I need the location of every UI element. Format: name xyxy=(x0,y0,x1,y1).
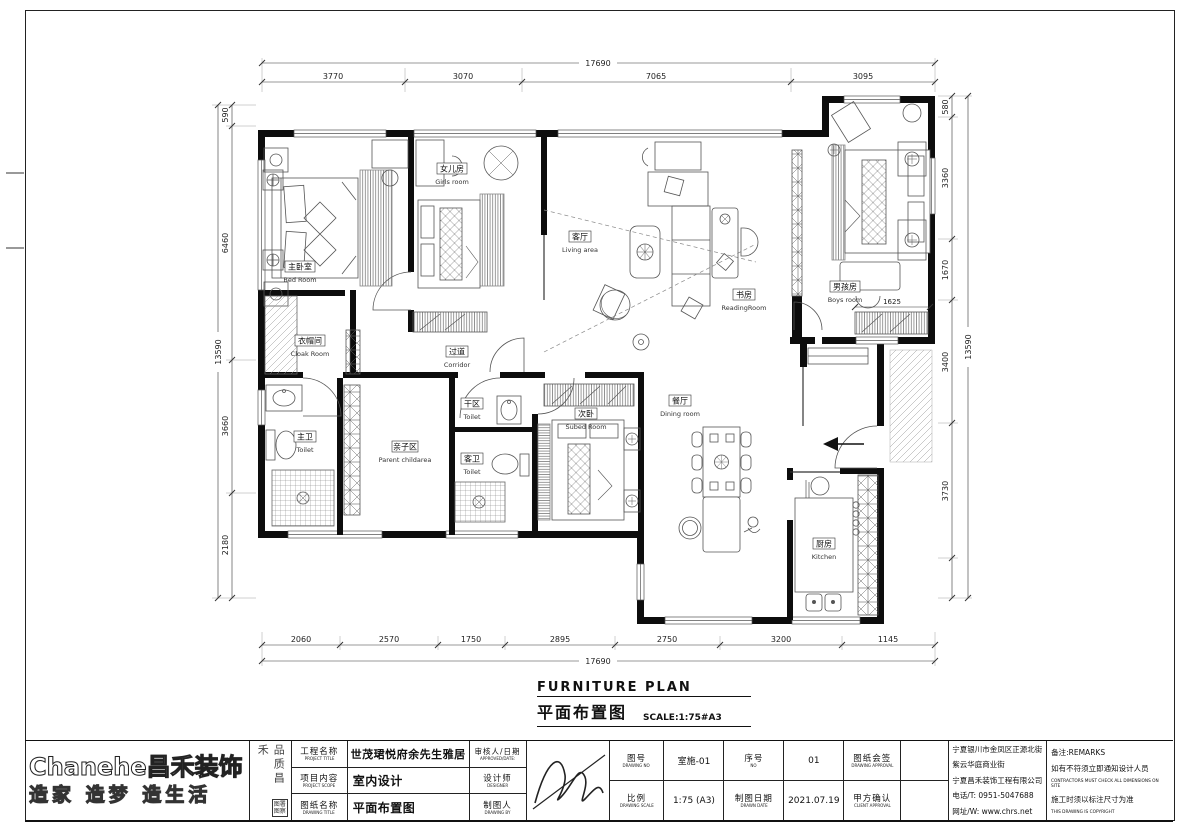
signature-cell xyxy=(527,741,610,820)
vertical-motto: 品质昌禾 xyxy=(254,744,286,799)
project-title-value: 世茂珺悦府余先生雅居 xyxy=(351,746,466,762)
svg-text:客厅: 客厅 xyxy=(572,232,588,242)
svg-text:3360: 3360 xyxy=(941,168,950,188)
drawing-no-label-col: 图号DRAWING NO 比例DRAWING SCALE xyxy=(610,741,665,820)
company-website: 网址/W: www.chrs.net xyxy=(952,807,1043,816)
svg-text:Toilet: Toilet xyxy=(295,446,313,454)
svg-text:13590: 13590 xyxy=(214,339,223,364)
svg-text:干区: 干区 xyxy=(464,400,480,409)
svg-text:13590: 13590 xyxy=(964,334,973,359)
svg-text:580: 580 xyxy=(941,99,950,114)
project-scope-label: 项目内容 xyxy=(300,772,338,784)
dim-left: 590 6460 3660 2180 13590 xyxy=(212,102,256,601)
svg-text:1750: 1750 xyxy=(461,635,481,644)
svg-text:厨房: 厨房 xyxy=(816,539,832,549)
designer-signature xyxy=(527,741,610,818)
main-toilet-fixtures xyxy=(266,385,334,526)
dim-boys-wardrobe: 1625 xyxy=(852,298,933,310)
svg-text:Cloak Room: Cloak Room xyxy=(291,350,330,358)
company-name: 宁夏昌禾装饰工程有限公司 xyxy=(952,776,1043,785)
svg-text:书房: 书房 xyxy=(736,290,752,300)
svg-text:17690: 17690 xyxy=(585,59,610,68)
scale-label: 比例 xyxy=(627,792,646,804)
corridor-cabinet xyxy=(413,312,487,332)
living-furniture xyxy=(544,172,756,352)
company-address2: 紫云华庭商业街 xyxy=(952,760,1043,769)
svg-text:590: 590 xyxy=(221,107,230,122)
room-label-living: 客厅 Living area xyxy=(562,231,598,254)
drawing-sheet: 主卧室 Bed Room 女儿房 Girls room 客厅 Living ar… xyxy=(0,0,1200,833)
dim-bottom: 2060 2570 1750 2895 2750 3200 1145 17690 xyxy=(259,632,938,666)
svg-text:Kitchen: Kitchen xyxy=(812,553,836,561)
svg-text:主卫: 主卫 xyxy=(297,432,313,442)
drawing-approval-label: 图纸会签 xyxy=(853,752,891,764)
svg-text:客卫: 客卫 xyxy=(464,454,480,464)
room-label-reading: 书房 ReadingRoom xyxy=(722,289,767,312)
svg-text:1625: 1625 xyxy=(883,298,901,306)
sheet-title-block: FURNITURE PLAN 平面布置图 SCALE:1:75#A3 xyxy=(537,680,751,727)
svg-text:1670: 1670 xyxy=(941,260,950,280)
left-label-column: 工程名称PROJECT TITLE 项目内容PROJECT SCOPE 图纸名称… xyxy=(292,741,348,820)
svg-text:3070: 3070 xyxy=(453,72,473,81)
svg-text:2750: 2750 xyxy=(657,635,677,644)
room-label-toilet-dry: 干区 Toilet xyxy=(461,398,483,421)
svg-text:ReadingRoom: ReadingRoom xyxy=(722,304,767,312)
company-address1: 宁夏银川市金凤区正源北街 xyxy=(952,745,1043,754)
svg-text:主卧室: 主卧室 xyxy=(288,262,312,272)
svg-text:Bed Room: Bed Room xyxy=(283,276,316,284)
svg-text:Living area: Living area xyxy=(562,246,598,254)
date-value: 2021.07.19 xyxy=(788,796,840,806)
svg-text:Toilet: Toilet xyxy=(462,468,480,476)
svg-text:Toilet: Toilet xyxy=(462,413,480,421)
svg-text:亲子区: 亲子区 xyxy=(393,442,417,452)
entry-furniture xyxy=(808,348,932,462)
drawing-no-value-col: 室施-01 1:75 (A3) xyxy=(664,741,724,820)
svg-text:男孩房: 男孩房 xyxy=(833,282,857,292)
svg-text:Boys room: Boys room xyxy=(828,296,863,304)
serial-value: 01 xyxy=(808,756,819,766)
svg-text:Subed Room: Subed Room xyxy=(565,423,606,431)
sheet-title-en: FURNITURE PLAN xyxy=(537,680,751,697)
svg-text:6460: 6460 xyxy=(221,233,230,253)
svg-text:3660: 3660 xyxy=(221,416,230,436)
project-scope-value: 室内设计 xyxy=(353,772,403,789)
room-label-corridor: 过道 Corridor xyxy=(444,346,471,369)
svg-text:次卧: 次卧 xyxy=(578,409,594,419)
date-label: 制图日期 xyxy=(735,792,773,804)
motto-column: 品质昌禾 图署 图察 xyxy=(250,741,292,820)
sheet-title-zh: 平面布置图 xyxy=(537,699,627,723)
svg-text:2060: 2060 xyxy=(291,635,311,644)
svg-text:3730: 3730 xyxy=(941,481,950,501)
svg-text:3770: 3770 xyxy=(323,72,343,81)
remarks-label: 备注:REMARKS xyxy=(1051,747,1169,758)
drawing-no-label: 图号 xyxy=(627,752,646,764)
dim-top: 3770 3070 7065 3095 17690 xyxy=(259,58,938,92)
svg-text:女儿房: 女儿房 xyxy=(440,164,464,174)
room-label-boys: 男孩房 Boys room xyxy=(828,281,863,304)
serial-label-col: 序号NO 制图日期DRAWN DATE xyxy=(724,741,784,820)
reading-furniture xyxy=(642,142,802,296)
draftsman-label: 制图人 xyxy=(483,799,512,811)
svg-text:Dining room: Dining room xyxy=(660,410,700,418)
room-label-dining: 餐厅 Dining room xyxy=(660,395,700,418)
kitchen-fixtures xyxy=(795,475,878,615)
parent-wardrobe xyxy=(344,385,360,515)
dining-furniture xyxy=(679,427,760,552)
company-logo: Chanehe昌禾装饰 造家 造梦 造生活 xyxy=(25,741,250,820)
company-phone: 电话/T: 0951-5047688 xyxy=(952,791,1043,800)
room-label-toilet-guest: 客卫 Toilet xyxy=(461,453,483,476)
girls-room-furniture xyxy=(416,140,518,288)
svg-text:17690: 17690 xyxy=(585,657,610,666)
scale-value: 1:75 (A3) xyxy=(673,796,715,806)
dim-right: 580 3360 1670 3400 3730 13590 xyxy=(938,93,973,601)
svg-text:餐厅: 餐厅 xyxy=(672,397,688,406)
project-title-label: 工程名称 xyxy=(300,745,338,757)
svg-text:Parent childarea: Parent childarea xyxy=(379,456,432,464)
room-label-girls: 女儿房 Girls room xyxy=(435,163,469,186)
drawing-no-value: 室施-01 xyxy=(678,754,711,767)
drawing-title-label: 图纸名称 xyxy=(300,799,338,811)
sheet-scale-note: SCALE:1:75#A3 xyxy=(643,713,722,723)
svg-text:Corridor: Corridor xyxy=(444,361,471,369)
approval-blank-col xyxy=(901,741,949,820)
svg-text:3400: 3400 xyxy=(941,352,950,372)
svg-text:衣帽间: 衣帽间 xyxy=(298,336,322,346)
approved-label: 审核人/日期 xyxy=(475,746,521,757)
remarks-cell: 备注:REMARKS 如有不符须立即通知设计人员 CONTRACTORS MUS… xyxy=(1047,741,1173,820)
remarks-line2-en: THIS DRAWING IS COPYRIGHT xyxy=(1051,810,1163,815)
serial-value-col: 01 2021.07.19 xyxy=(784,741,844,820)
client-approval-label: 甲方确认 xyxy=(853,792,891,804)
remarks-line1-en: CONTRACTORS MUST CHECK ALL DIMENSIONS ON… xyxy=(1051,779,1163,789)
room-label-subed: 次卧 Subed Room xyxy=(565,408,606,431)
company-info: 宁夏银川市金凤区正源北街 紫云华庭商业街 宁夏昌禾装饰工程有限公司 电话/T: … xyxy=(949,741,1047,820)
svg-text:过道: 过道 xyxy=(449,347,465,357)
serial-label: 序号 xyxy=(744,752,763,764)
svg-text:1145: 1145 xyxy=(878,635,898,644)
remarks-line2: 施工时须以标注尺寸为准 xyxy=(1051,794,1169,805)
approval-label-col: 图纸会签DRAWING APPROVAL 甲方确认CLIENT APPROVAL xyxy=(844,741,901,820)
svg-text:2570: 2570 xyxy=(379,635,399,644)
title-block: Chanehe昌禾装饰 造家 造梦 造生活 品质昌禾 图署 图察 工程名称PRO… xyxy=(25,740,1173,822)
svg-text:7065: 7065 xyxy=(646,72,666,81)
drawing-title-value: 平面布置图 xyxy=(353,799,416,816)
svg-text:2895: 2895 xyxy=(550,635,570,644)
designer-label: 设计师 xyxy=(483,772,512,784)
people-label-column: 审核人/日期APPROVED/DATE: 设计师DESIGNER 制图人DRAW… xyxy=(470,741,527,820)
subed-furniture xyxy=(538,384,640,520)
brand-slogan: 造家 造梦 造生活 xyxy=(29,780,249,807)
left-value-column: 世茂珺悦府余先生雅居 室内设计 平面布置图 xyxy=(348,741,470,820)
room-label-parent: 亲子区 Parent childarea xyxy=(379,441,432,464)
svg-text:3200: 3200 xyxy=(771,635,791,644)
remarks-line1: 如有不符须立即通知设计人员 xyxy=(1051,763,1169,774)
svg-text:2180: 2180 xyxy=(221,535,230,555)
seal-stamp: 图署 图察 xyxy=(272,799,288,817)
svg-text:3095: 3095 xyxy=(853,72,873,81)
svg-text:Girls room: Girls room xyxy=(435,178,469,186)
brand-logo-text: Chanehe昌禾装饰 xyxy=(29,754,249,780)
room-label-toilet-main: 主卫 Toilet xyxy=(294,431,316,454)
